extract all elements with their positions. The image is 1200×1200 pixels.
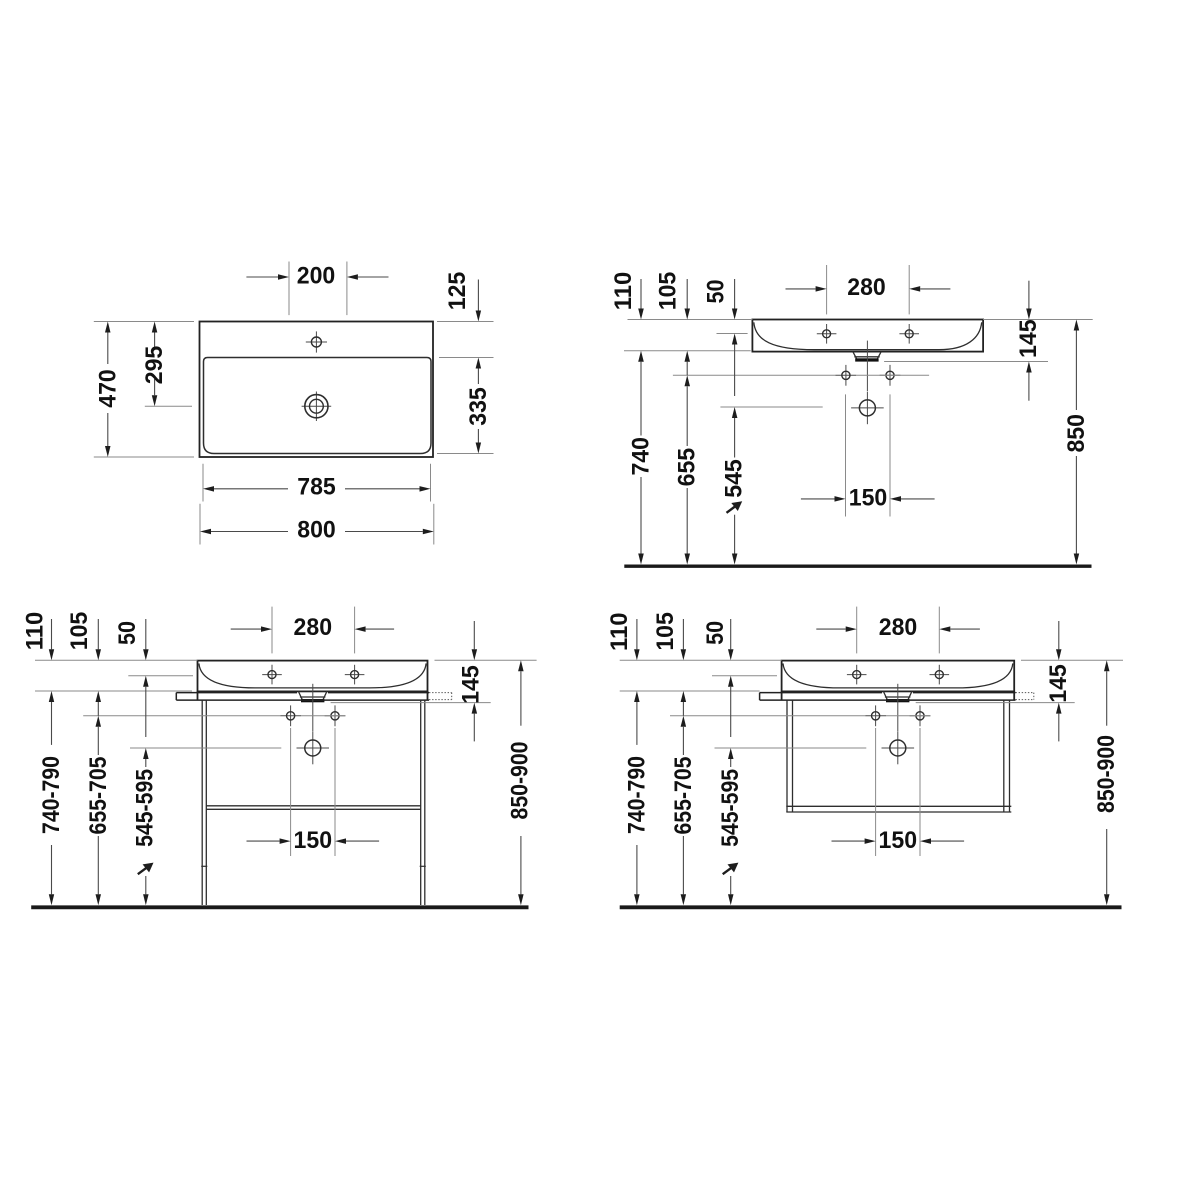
svg-text:50: 50 <box>702 621 729 645</box>
svg-text:850-900: 850-900 <box>1093 735 1120 813</box>
svg-text:785: 785 <box>297 474 336 501</box>
svg-text:545-595: 545-595 <box>132 769 159 847</box>
svg-text:800: 800 <box>297 516 336 543</box>
svg-text:850: 850 <box>1063 414 1090 453</box>
svg-text:145: 145 <box>1015 319 1042 358</box>
svg-text:50: 50 <box>703 280 730 304</box>
svg-text:110: 110 <box>606 612 633 651</box>
svg-text:740-790: 740-790 <box>623 756 650 834</box>
svg-text:145: 145 <box>1045 664 1072 703</box>
svg-text:545-595: 545-595 <box>717 769 744 847</box>
svg-text:110: 110 <box>610 272 637 311</box>
svg-text:280: 280 <box>294 614 333 641</box>
svg-text:105: 105 <box>652 612 679 651</box>
svg-text:200: 200 <box>297 262 336 289</box>
svg-text:545: 545 <box>721 459 748 498</box>
svg-text:295: 295 <box>141 346 168 385</box>
svg-text:740-790: 740-790 <box>38 756 65 834</box>
svg-text:105: 105 <box>66 612 93 651</box>
svg-text:150: 150 <box>849 485 888 512</box>
svg-text:280: 280 <box>847 274 886 301</box>
svg-text:145: 145 <box>458 665 485 704</box>
svg-text:740: 740 <box>628 437 655 476</box>
svg-text:655-705: 655-705 <box>85 757 112 835</box>
svg-text:110: 110 <box>22 612 49 651</box>
svg-text:335: 335 <box>465 387 492 426</box>
svg-text:105: 105 <box>655 272 682 311</box>
svg-text:655-705: 655-705 <box>670 757 697 835</box>
svg-text:150: 150 <box>879 827 918 854</box>
svg-text:125: 125 <box>444 272 471 311</box>
svg-text:470: 470 <box>94 369 121 408</box>
svg-text:150: 150 <box>294 827 333 854</box>
svg-text:280: 280 <box>879 614 918 641</box>
svg-text:655: 655 <box>674 448 701 487</box>
svg-text:50: 50 <box>114 621 141 645</box>
svg-text:850-900: 850-900 <box>506 742 533 820</box>
